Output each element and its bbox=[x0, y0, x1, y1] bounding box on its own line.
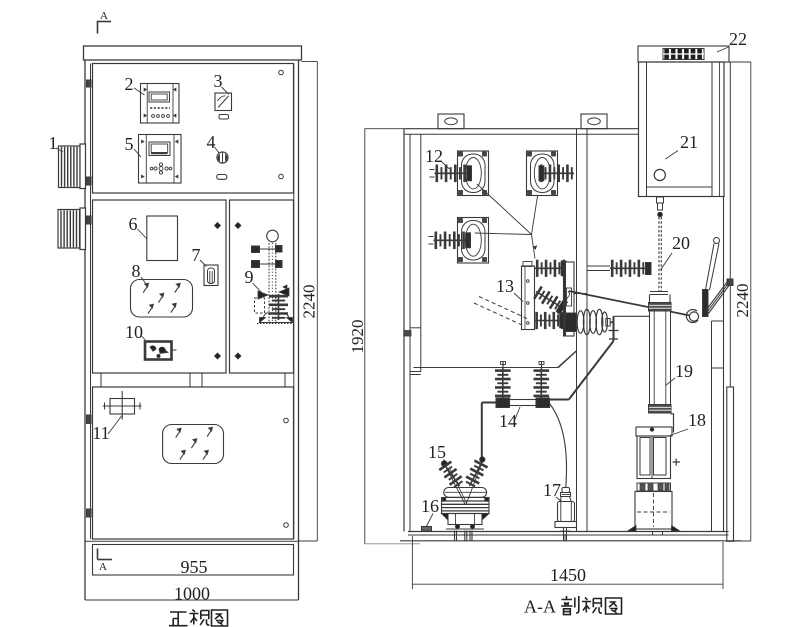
svg-text:14: 14 bbox=[499, 411, 517, 431]
svg-text:A-A: A-A bbox=[524, 597, 556, 617]
svg-text:22: 22 bbox=[729, 29, 747, 49]
svg-text:A: A bbox=[99, 561, 107, 573]
svg-text:8: 8 bbox=[132, 261, 141, 281]
svg-text:18: 18 bbox=[688, 410, 706, 430]
svg-text:3: 3 bbox=[214, 71, 223, 91]
svg-text:1920: 1920 bbox=[348, 320, 367, 354]
svg-text:17: 17 bbox=[543, 480, 561, 500]
svg-text:1450: 1450 bbox=[550, 565, 586, 585]
svg-text:7: 7 bbox=[192, 245, 201, 265]
svg-text:21: 21 bbox=[680, 132, 698, 152]
svg-text:13: 13 bbox=[496, 276, 514, 296]
svg-text:12: 12 bbox=[425, 146, 443, 166]
svg-text:2240: 2240 bbox=[733, 284, 752, 318]
svg-text:10: 10 bbox=[125, 322, 143, 342]
svg-text:5: 5 bbox=[125, 134, 134, 154]
svg-text:20: 20 bbox=[672, 233, 690, 253]
svg-text:6: 6 bbox=[129, 214, 138, 234]
svg-text:15: 15 bbox=[428, 442, 446, 462]
svg-text:9: 9 bbox=[245, 267, 254, 287]
svg-text:955: 955 bbox=[181, 557, 208, 577]
svg-text:19: 19 bbox=[675, 361, 693, 381]
svg-text:4: 4 bbox=[207, 132, 216, 152]
svg-text:1: 1 bbox=[49, 133, 58, 153]
svg-text:1000: 1000 bbox=[174, 584, 210, 604]
svg-text:A: A bbox=[100, 10, 108, 22]
svg-text:2240: 2240 bbox=[300, 285, 319, 319]
svg-text:11: 11 bbox=[92, 423, 109, 443]
svg-text:16: 16 bbox=[421, 496, 439, 516]
svg-text:2: 2 bbox=[125, 74, 134, 94]
